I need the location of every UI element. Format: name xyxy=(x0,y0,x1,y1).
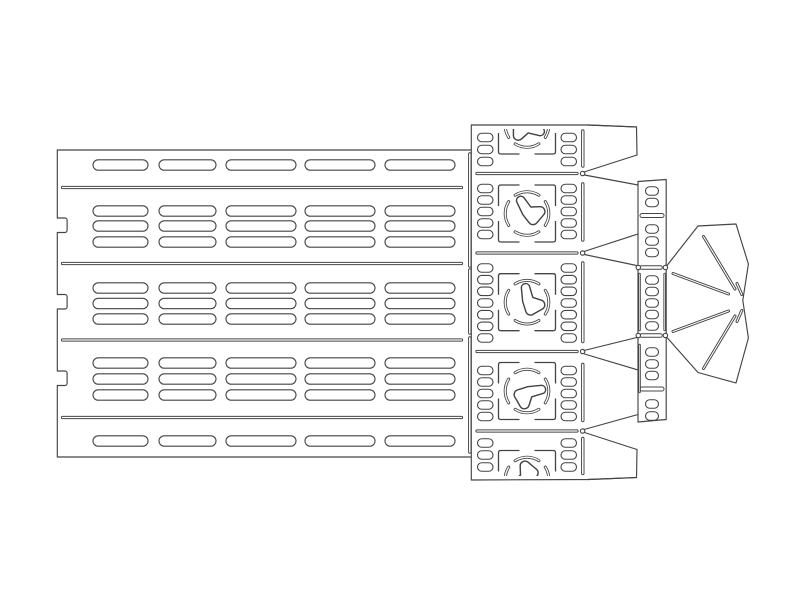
right-strip-part xyxy=(638,180,666,423)
laser-cut-template-drawing xyxy=(0,0,800,606)
fan-part xyxy=(667,224,748,383)
rotor-patterns xyxy=(499,97,556,508)
template-canvas xyxy=(0,0,800,606)
center-strip-part xyxy=(471,125,636,480)
left-panel-part xyxy=(57,150,471,457)
